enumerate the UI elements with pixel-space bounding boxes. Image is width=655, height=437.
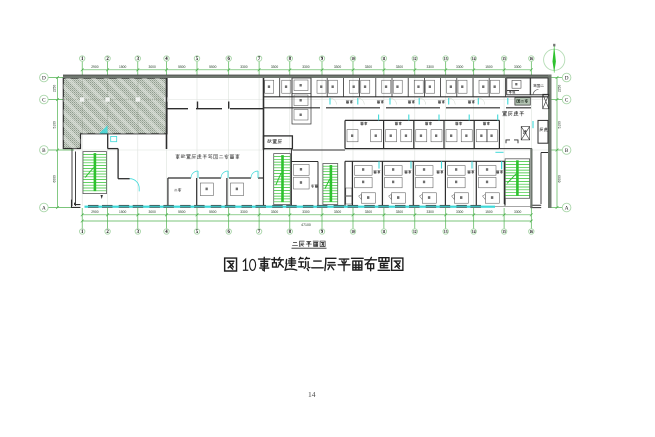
svg-text:3300: 3300 xyxy=(396,210,404,214)
svg-text:1500: 1500 xyxy=(485,65,493,69)
svg-text:3300: 3300 xyxy=(514,210,522,214)
svg-text:2250: 2250 xyxy=(53,85,57,93)
svg-text:6000: 6000 xyxy=(53,175,57,183)
svg-text:1500: 1500 xyxy=(119,210,127,214)
svg-text:6000: 6000 xyxy=(557,175,561,183)
svg-text:47100: 47100 xyxy=(301,223,311,227)
svg-text:3300: 3300 xyxy=(334,210,342,214)
svg-text:16: 16 xyxy=(530,57,534,61)
svg-text:11: 11 xyxy=(382,230,386,234)
svg-text:11: 11 xyxy=(382,57,386,61)
svg-text:C: C xyxy=(565,97,569,103)
svg-text:A: A xyxy=(42,205,46,211)
svg-text:10: 10 xyxy=(351,57,355,61)
svg-text:D: D xyxy=(565,75,569,81)
svg-text:3300: 3300 xyxy=(427,65,435,69)
svg-text:5500: 5500 xyxy=(178,65,186,69)
svg-text:3300: 3300 xyxy=(334,65,342,69)
svg-text:3300: 3300 xyxy=(302,210,310,214)
svg-text:14: 14 xyxy=(472,230,476,234)
svg-text:16: 16 xyxy=(530,230,534,234)
svg-text:5500: 5500 xyxy=(209,210,217,214)
svg-text:10: 10 xyxy=(351,230,355,234)
svg-text:14: 14 xyxy=(472,57,476,61)
svg-text:1500: 1500 xyxy=(119,65,127,69)
svg-text:13: 13 xyxy=(444,230,448,234)
svg-text:3000: 3000 xyxy=(149,65,157,69)
svg-text:3300: 3300 xyxy=(456,210,464,214)
svg-text:B: B xyxy=(42,148,46,154)
svg-text:3300: 3300 xyxy=(396,65,404,69)
svg-text:2900: 2900 xyxy=(91,65,99,69)
svg-text:15: 15 xyxy=(502,57,506,61)
svg-text:3300: 3300 xyxy=(365,65,373,69)
svg-text:3300: 3300 xyxy=(427,210,435,214)
svg-text:A: A xyxy=(565,205,569,211)
svg-text:3300: 3300 xyxy=(456,65,464,69)
svg-text:3300: 3300 xyxy=(271,65,279,69)
svg-text:12: 12 xyxy=(413,57,417,61)
svg-text:B: B xyxy=(565,148,569,154)
svg-text:3300: 3300 xyxy=(514,65,522,69)
svg-text:1500: 1500 xyxy=(485,210,493,214)
svg-text:3300: 3300 xyxy=(240,210,248,214)
svg-text:3300: 3300 xyxy=(271,210,279,214)
svg-text:5100: 5100 xyxy=(557,121,561,129)
svg-text:2250: 2250 xyxy=(557,85,561,93)
svg-text:5500: 5500 xyxy=(178,210,186,214)
svg-text:C: C xyxy=(42,97,46,103)
svg-text:3000: 3000 xyxy=(149,210,157,214)
svg-text:14: 14 xyxy=(308,390,316,399)
svg-text:3300: 3300 xyxy=(240,65,248,69)
svg-text:15: 15 xyxy=(502,230,506,234)
svg-text:5100: 5100 xyxy=(53,121,57,129)
svg-text:3300: 3300 xyxy=(302,65,310,69)
svg-text:2900: 2900 xyxy=(91,210,99,214)
svg-text:12: 12 xyxy=(413,230,417,234)
svg-text:5500: 5500 xyxy=(209,65,217,69)
svg-text:13: 13 xyxy=(444,57,448,61)
svg-text:D: D xyxy=(42,75,46,81)
svg-text:3300: 3300 xyxy=(365,210,373,214)
